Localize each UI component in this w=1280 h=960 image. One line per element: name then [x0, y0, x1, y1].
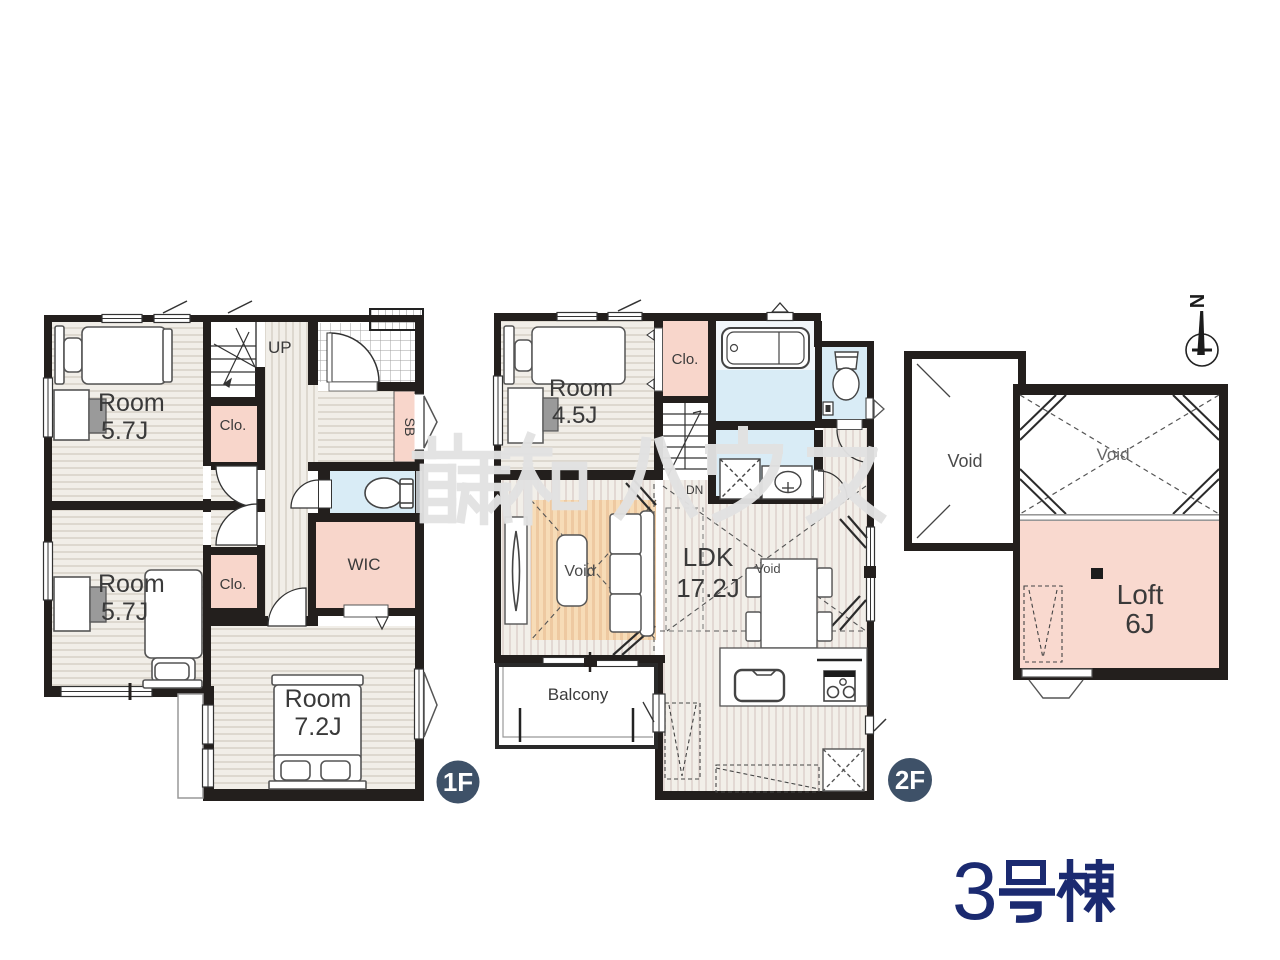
- svg-text:LDK: LDK: [683, 542, 734, 572]
- svg-text:4.5J: 4.5J: [552, 402, 597, 429]
- svg-text:Balcony: Balcony: [548, 685, 609, 704]
- svg-text:Room: Room: [285, 685, 352, 713]
- svg-text:5.7J: 5.7J: [101, 417, 148, 445]
- svg-text:17.2J: 17.2J: [676, 573, 740, 603]
- svg-text:1F: 1F: [443, 767, 473, 797]
- svg-text:Void: Void: [755, 561, 780, 576]
- svg-text:5.7J: 5.7J: [101, 598, 148, 626]
- svg-text:Room: Room: [549, 375, 613, 402]
- svg-text:Void: Void: [1096, 445, 1129, 464]
- svg-text:Clo.: Clo.: [220, 576, 247, 593]
- svg-text:Clo.: Clo.: [672, 351, 699, 368]
- svg-text:7.2J: 7.2J: [294, 713, 341, 741]
- svg-text:Void: Void: [564, 563, 595, 580]
- svg-text:WIC: WIC: [347, 555, 380, 574]
- svg-text:DN: DN: [686, 483, 703, 497]
- svg-text:3: 3: [952, 846, 998, 937]
- svg-text:2F: 2F: [895, 765, 925, 795]
- svg-text:UP: UP: [268, 338, 292, 357]
- svg-text:SB: SB: [402, 418, 418, 437]
- svg-text:Loft: Loft: [1117, 579, 1164, 610]
- svg-text:N: N: [1187, 294, 1209, 308]
- svg-text:6J: 6J: [1125, 608, 1155, 639]
- svg-text:Void: Void: [947, 451, 982, 471]
- svg-text:Room: Room: [98, 389, 165, 417]
- svg-text:Room: Room: [98, 570, 165, 598]
- svg-text:Clo.: Clo.: [220, 417, 247, 434]
